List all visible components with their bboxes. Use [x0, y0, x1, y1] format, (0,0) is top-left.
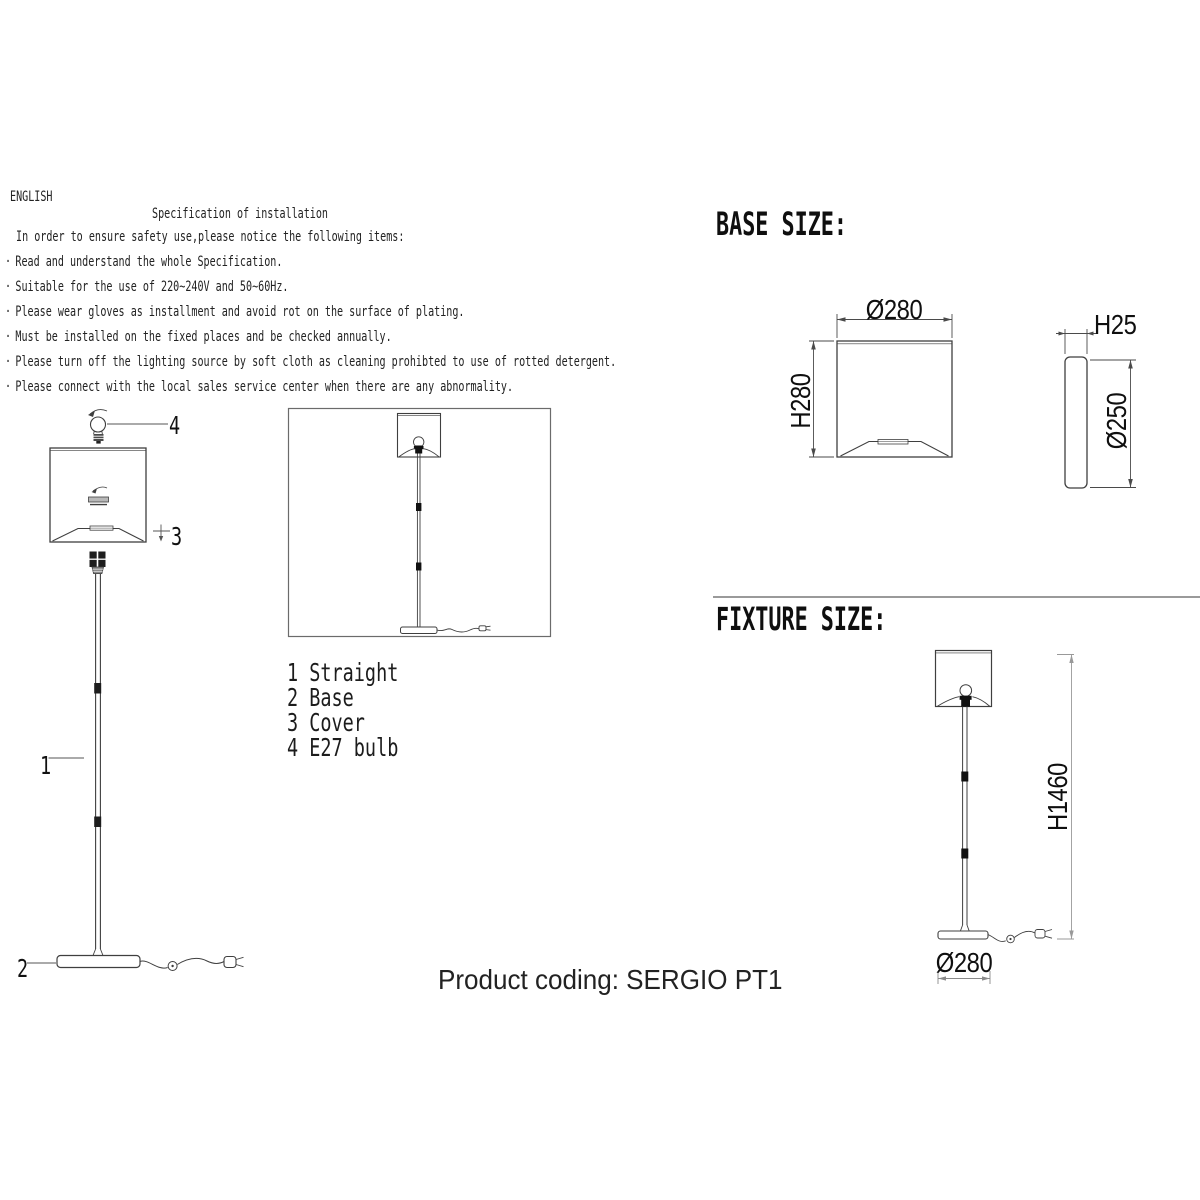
bulb-icon — [88, 410, 107, 444]
callout-leader-cover — [153, 525, 170, 542]
lamp-base — [57, 956, 140, 968]
bullet-text: Please turn off the lighting source by s… — [15, 354, 616, 370]
dim-label-fixture-height: H1460 — [1044, 750, 1072, 844]
inset-lamp-shade — [398, 414, 441, 458]
spec-intro: In order to ensure safety use,please not… — [16, 229, 404, 246]
fixture-lamp-shade — [936, 651, 992, 707]
power-cord — [140, 957, 244, 971]
bullet-dot-icon: · — [5, 254, 11, 270]
fixture-lamp-base — [938, 931, 988, 939]
callout-number-cover: 3 — [171, 524, 182, 549]
fixture-power-cord — [988, 930, 1052, 943]
base-size-heading: BASE SIZE: — [716, 208, 847, 240]
socket-bracket — [89, 497, 109, 502]
bullet-text: Please wear gloves as installment and av… — [15, 304, 464, 320]
lamp-socket — [90, 552, 106, 574]
bullet-dot-icon: · — [5, 329, 11, 345]
plug-icon — [224, 957, 236, 968]
shade-front-view — [837, 341, 952, 457]
language-label: ENGLISH — [10, 189, 52, 206]
callout-number-straight: 1 — [40, 753, 51, 778]
spec-title: Specification of installation — [152, 206, 328, 223]
inset-power-cord — [437, 626, 491, 632]
spec-bullet: ·Must be installed on the fixed places a… — [5, 329, 392, 346]
bullet-text: Please connect with the local sales serv… — [15, 379, 513, 395]
inset-plug-icon — [479, 626, 486, 631]
spec-bullet: ·Read and understand the whole Specifica… — [5, 254, 282, 271]
parts-list-item: 3Cover — [287, 710, 365, 735]
lamp-pole — [93, 574, 103, 956]
spec-bullet: ·Please connect with the local sales ser… — [5, 379, 513, 396]
bullet-dot-icon: · — [5, 279, 11, 295]
spec-bullet: ·Please turn off the lighting source by … — [5, 354, 616, 371]
fixture-size-heading: FIXTURE SIZE: — [716, 603, 886, 635]
inset-lamp-base — [401, 627, 438, 634]
dim-label-shade-diameter: Ø280 — [860, 296, 928, 324]
product-coding: Product coding: SERGIO PT1 — [438, 966, 782, 994]
dimension-base-thickness — [1056, 329, 1096, 354]
parts-list-item: 1Straight — [287, 660, 398, 685]
assembled-lamp-inset — [287, 407, 553, 639]
fixture-plug-icon — [1035, 930, 1045, 939]
spec-bullet: ·Please wear gloves as installment and a… — [5, 304, 464, 321]
part-label: E27 bulb — [309, 733, 398, 762]
parts-list-item: 4E27 bulb — [287, 735, 398, 760]
pole-joint — [94, 683, 101, 694]
inset-border — [289, 409, 551, 637]
dim-label-base-diameter: Ø250 — [1103, 383, 1131, 460]
spec-bullet: ·Suitable for the use of 220~240V and 50… — [5, 279, 288, 296]
base-side-view — [1065, 357, 1087, 488]
dim-label-shade-height: H280 — [787, 363, 815, 440]
bullet-text: Read and understand the whole Specificat… — [15, 254, 282, 270]
bullet-dot-icon: · — [5, 354, 11, 370]
dim-label-base-thickness: H25 — [1094, 311, 1136, 339]
part-number: 4 — [287, 733, 298, 762]
lamp-shade — [50, 448, 146, 542]
fixture-lamp-pole — [960, 707, 969, 932]
bullet-dot-icon: · — [5, 304, 11, 320]
bullet-text: Suitable for the use of 220~240V and 50~… — [15, 279, 288, 295]
parts-list-item: 2Base — [287, 685, 354, 710]
callout-number-base: 2 — [17, 956, 28, 981]
fixture-bulb-icon — [960, 685, 972, 697]
dim-label-fixture-base-diameter: Ø280 — [930, 949, 998, 977]
exploded-view-drawing — [0, 400, 260, 985]
inset-lamp-pole — [416, 454, 421, 628]
bullet-dot-icon: · — [5, 379, 11, 395]
callout-number-bulb: 4 — [169, 413, 180, 438]
fixture-size-drawing — [900, 640, 1110, 995]
section-divider — [713, 596, 1200, 598]
bullet-text: Must be installed on the fixed places an… — [15, 329, 391, 345]
pole-joint — [94, 817, 101, 828]
base-size-drawing — [780, 285, 1200, 500]
